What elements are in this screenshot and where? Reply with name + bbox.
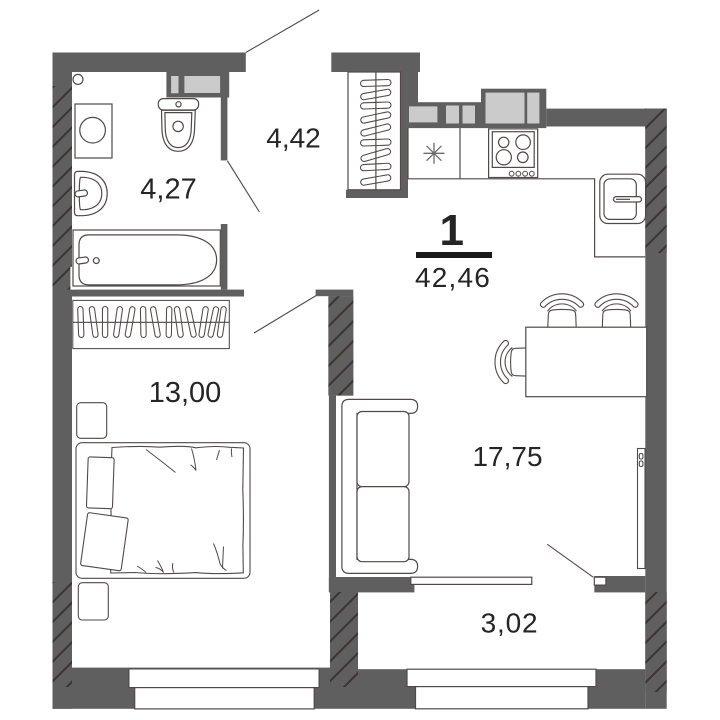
svg-text:1: 1 xyxy=(439,206,463,255)
svg-text:42,46: 42,46 xyxy=(415,262,491,293)
svg-text:3,02: 3,02 xyxy=(481,608,539,639)
svg-text:13,00: 13,00 xyxy=(149,377,222,409)
svg-text:4,27: 4,27 xyxy=(140,174,196,206)
svg-text:4,42: 4,42 xyxy=(266,123,321,154)
svg-text:17,75: 17,75 xyxy=(472,441,542,472)
